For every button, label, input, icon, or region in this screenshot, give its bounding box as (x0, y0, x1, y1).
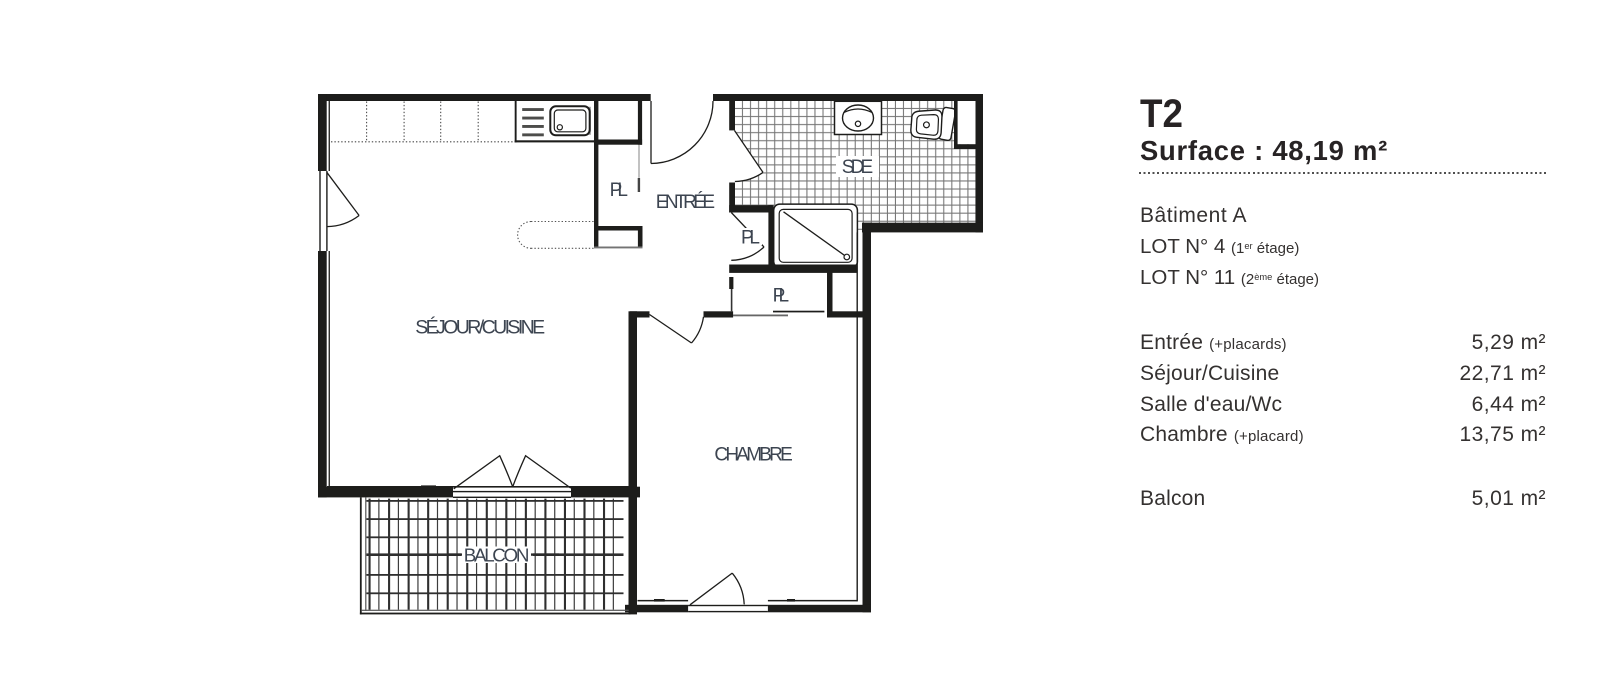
svg-text:BALCON: BALCON (464, 544, 530, 565)
svg-text:CHAMBRE: CHAMBRE (714, 445, 792, 466)
svg-text:SÉJOUR/CUISINE: SÉJOUR/CUISINE (415, 315, 545, 338)
svg-text:SDE: SDE (842, 157, 874, 178)
svg-text:PL: PL (773, 286, 790, 307)
svg-text:PL: PL (741, 227, 760, 248)
svg-text:PL: PL (610, 180, 628, 201)
svg-text:ENTRÉE: ENTRÉE (656, 192, 715, 213)
